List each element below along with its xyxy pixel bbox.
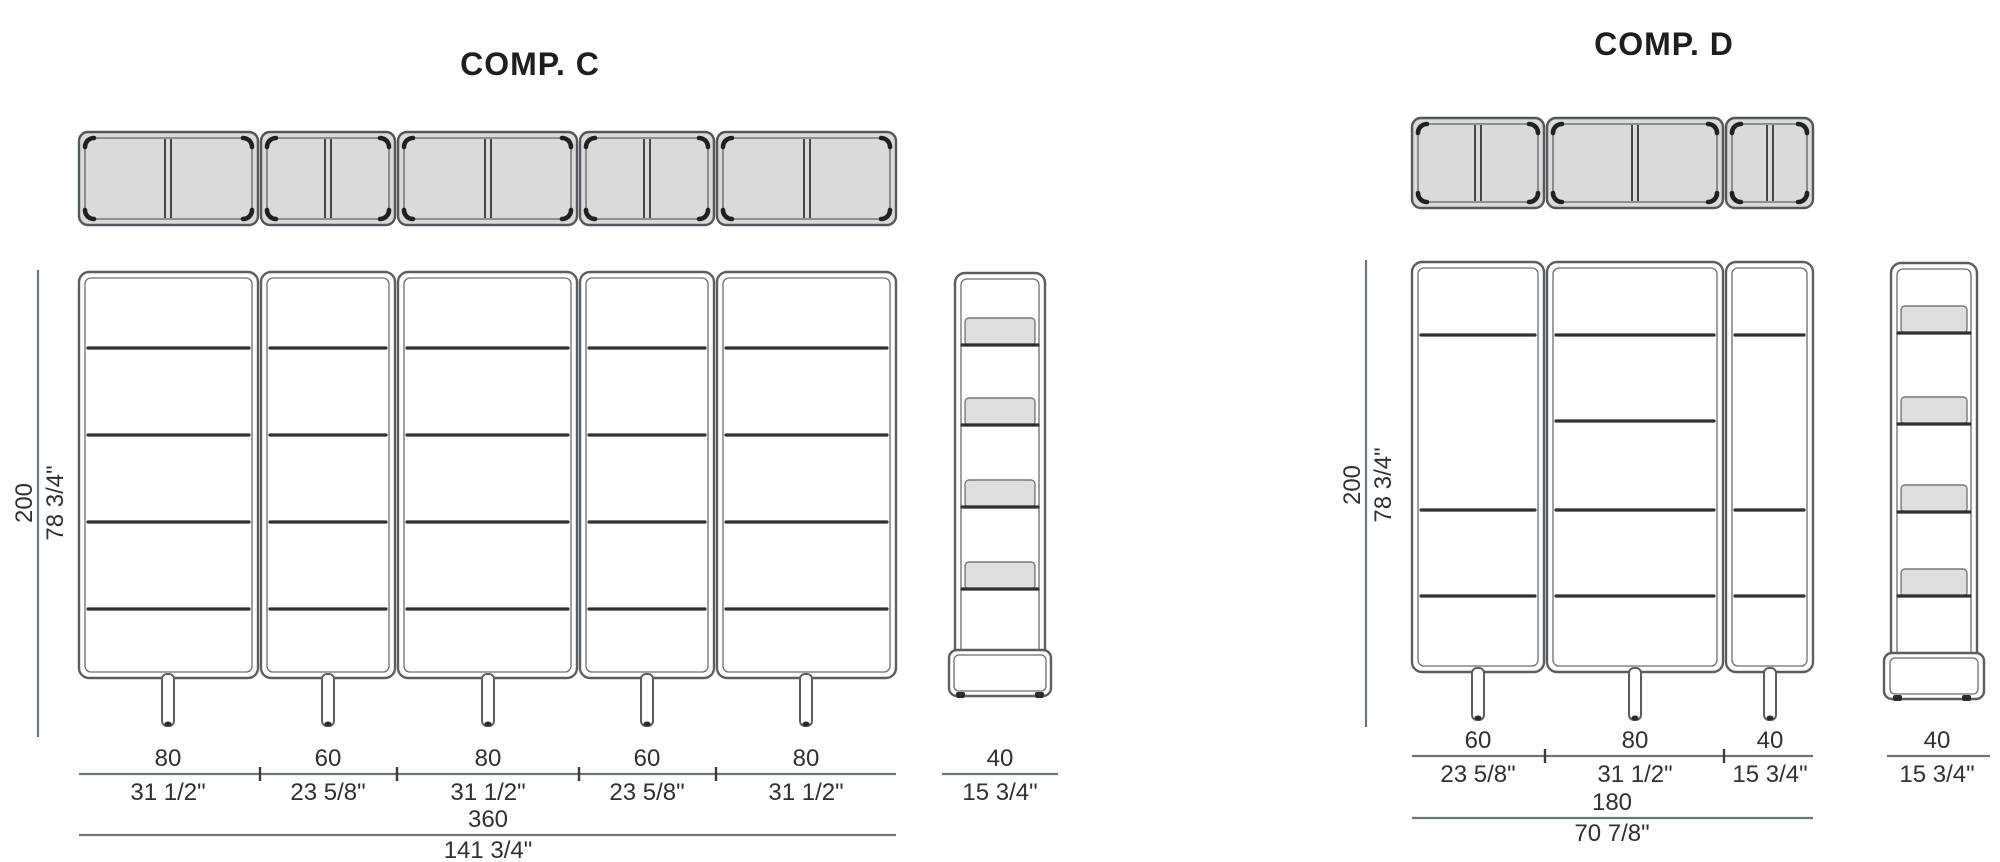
comp-c-total-cm: 360	[468, 806, 508, 833]
comp-d-height-in: 78 3/4"	[1370, 447, 1397, 522]
comp-d-top-view	[1412, 118, 1813, 208]
comp-c-side-view	[949, 273, 1051, 698]
top-module	[717, 132, 896, 225]
comp-c-depth-dimension: 40 15 3/4"	[942, 745, 1058, 806]
comp-c-front-view	[79, 272, 896, 727]
comp-c-seg1-cm: 60	[315, 745, 342, 772]
top-module	[1726, 118, 1813, 208]
comp-d-seg2-in: 15 3/4"	[1732, 761, 1807, 788]
comp-d-depth-dimension: 40 15 3/4"	[1887, 727, 1990, 788]
comp-c-seg0-in: 31 1/2"	[130, 779, 205, 806]
comp-d-seg0-cm: 60	[1465, 727, 1492, 754]
comp-c-seg3-in: 23 5/8"	[609, 779, 684, 806]
front-legs	[162, 674, 812, 727]
comp-c-height-in: 78 3/4"	[42, 465, 69, 540]
front-module	[1726, 262, 1813, 672]
front-module	[398, 272, 577, 678]
comp-c-seg2-in: 31 1/2"	[450, 779, 525, 806]
comp-d-depth-cm: 40	[1924, 727, 1951, 754]
comp-d-seg2-cm: 40	[1757, 727, 1784, 754]
comp-d-height-dimension: 200 78 3/4"	[1339, 260, 1397, 727]
comp-d-front-view	[1412, 262, 1813, 721]
comp-c-title: COMP. C	[460, 46, 600, 82]
front-legs	[1472, 668, 1776, 721]
comp-c-seg0-cm: 80	[155, 745, 182, 772]
comp-c-depth-in: 15 3/4"	[962, 779, 1037, 806]
comp-d-width-dimension: 60 80 40 23 5/8" 31 1/2" 15 3/4"	[1412, 727, 1813, 788]
comp-d-total-dimension: 180 70 7/8"	[1412, 789, 1813, 847]
comp-c-seg4-in: 31 1/2"	[768, 779, 843, 806]
comp-d-seg0-in: 23 5/8"	[1440, 761, 1515, 788]
comp-c-depth-cm: 40	[987, 745, 1014, 772]
comp-d-seg1-in: 31 1/2"	[1597, 761, 1672, 788]
comp-c-height-dimension: 200 78 3/4"	[11, 270, 69, 737]
comp-d-depth-in: 15 3/4"	[1899, 761, 1974, 788]
comp-c-seg3-cm: 60	[634, 745, 661, 772]
comp-d-drawing: COMP. D	[1339, 26, 1990, 847]
top-module	[580, 132, 714, 225]
comp-c-seg1-in: 23 5/8"	[290, 779, 365, 806]
comp-c-width-dimension: 80 60 80 60 80 31 1/2" 23 5/8" 31 1/2" 2…	[79, 745, 896, 806]
comp-d-title: COMP. D	[1594, 26, 1734, 62]
comp-c-seg4-cm: 80	[793, 745, 820, 772]
comp-c-total-in: 141 3/4"	[444, 837, 533, 862]
shelving-dimension-drawing: COMP. C	[0, 0, 2000, 862]
top-module	[79, 132, 258, 225]
comp-c-seg2-cm: 80	[475, 745, 502, 772]
comp-d-total-cm: 180	[1592, 789, 1632, 816]
comp-c-total-dimension: 360 141 3/4"	[79, 806, 896, 862]
comp-d-seg1-cm: 80	[1622, 727, 1649, 754]
front-module	[1412, 262, 1544, 672]
comp-c-drawing: COMP. C	[11, 46, 1058, 862]
comp-d-side-view	[1884, 263, 1984, 701]
comp-c-height-cm: 200	[11, 483, 38, 523]
top-module	[1412, 118, 1544, 208]
front-module	[261, 272, 395, 678]
top-module	[261, 132, 395, 225]
technical-drawing-page: COMP. C	[0, 0, 2000, 862]
front-module	[1547, 262, 1723, 672]
comp-d-height-cm: 200	[1339, 465, 1366, 505]
comp-d-total-in: 70 7/8"	[1574, 820, 1649, 847]
top-module	[398, 132, 577, 225]
top-module	[1547, 118, 1723, 208]
front-module	[79, 272, 258, 678]
comp-c-top-view	[79, 132, 896, 225]
front-module	[717, 272, 896, 678]
front-module	[580, 272, 714, 678]
